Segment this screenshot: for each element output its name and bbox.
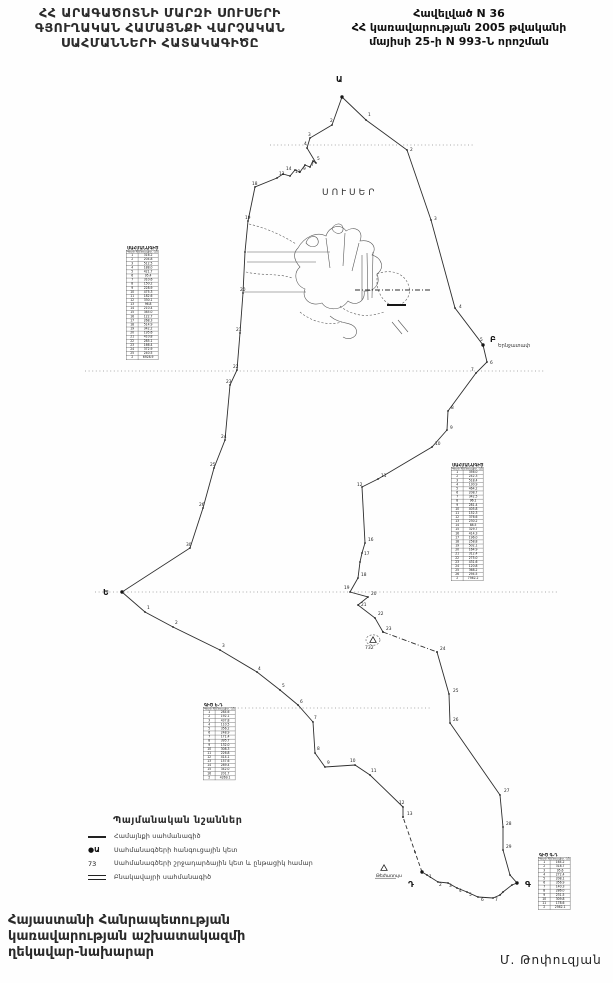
- boundary-point: [406, 149, 408, 151]
- boundary-point: [436, 651, 438, 653]
- boundary-line: [383, 632, 437, 652]
- table-cell: 4269.1: [215, 776, 235, 780]
- table: Կետի NՀեռավոր. (մ)1164.22318.7395.64272.…: [538, 857, 570, 910]
- point-number: 4: [258, 666, 261, 672]
- boundary-point: [509, 874, 511, 876]
- boundary-point: [499, 794, 501, 796]
- point-number: 21: [361, 602, 367, 608]
- point-number: 12: [357, 482, 363, 488]
- boundary-point: [502, 891, 504, 893]
- legend-item-label: Սահմանագծերի շրջադարձային կետ և ընթացիկ …: [114, 860, 313, 867]
- boundary-point: [377, 478, 379, 480]
- boundary-point: [315, 162, 317, 164]
- boundary-point: [466, 891, 468, 893]
- boundary-point: [449, 722, 451, 724]
- point-number: 8: [317, 746, 320, 752]
- point-number: 4: [459, 304, 462, 310]
- junction-point: [420, 870, 423, 873]
- legend-item-label: Սահմանագծերի հանգուցային կետ: [114, 847, 238, 854]
- table-cell: Σ: [451, 577, 463, 581]
- boundary-point: [374, 617, 376, 619]
- boundary-point: [369, 774, 371, 776]
- boundary-point: [430, 219, 432, 221]
- boundary-point: [365, 119, 367, 121]
- boundary-point: [382, 631, 384, 633]
- boundary-point: [144, 611, 146, 613]
- boundary-point: [312, 721, 314, 723]
- point-number: 18: [252, 181, 258, 187]
- boundary-point: [324, 766, 326, 768]
- point-number: 12: [279, 171, 285, 177]
- boundary-point: [502, 826, 504, 828]
- boundary-point: [502, 849, 504, 851]
- boundary-point: [414, 851, 416, 853]
- point-number: 3: [434, 216, 437, 222]
- boundary-point: [499, 894, 501, 896]
- boundary-point: [426, 874, 428, 876]
- point-number: 3: [308, 132, 311, 138]
- boundary-point: [448, 693, 450, 695]
- boundary-point: [364, 542, 366, 544]
- boundary-point: [357, 604, 359, 606]
- point-number: 19: [245, 215, 251, 221]
- boundary-point: [475, 372, 477, 374]
- boundary-point: [331, 124, 333, 126]
- village-name-label: ՍՈՒՍԵՐ: [322, 188, 377, 198]
- point-number: 2: [439, 882, 442, 888]
- junction-label: Ե: [103, 588, 109, 597]
- point-number: 25: [210, 462, 216, 468]
- boundary-point: [402, 816, 404, 818]
- boundary-point: [314, 752, 316, 754]
- settlement-outline: [244, 252, 330, 292]
- footer-line-2: կառավարության աշխատակազմի: [8, 929, 245, 945]
- junction-point: [120, 590, 123, 593]
- neighbor-name-label: Երնջատափ: [498, 343, 530, 349]
- point-number: 11: [381, 473, 387, 479]
- point-number: 5: [317, 156, 320, 162]
- footer-issuer: Հայաստանի Հանրապետության կառավարության ա…: [8, 913, 245, 961]
- coordinate-table: Կետի NՀեռավոր. (մ)1316.22204.83512.54188…: [126, 250, 158, 369]
- coordinate-table: Կետի NՀեռավոր. (մ)1356.02242.33518.44130…: [451, 467, 482, 591]
- point-number: 13: [407, 811, 413, 817]
- point-number: 4: [304, 141, 307, 147]
- junction-label: Ա: [336, 75, 343, 84]
- legend-item: Համայնքի սահմանագիծ: [88, 830, 328, 844]
- coordinate-table: Կետի NՀեռավոր. (մ)1284.62192.13437.84110…: [203, 707, 230, 787]
- point-number: 23: [386, 626, 392, 632]
- point-number: 10: [435, 441, 441, 447]
- junction-symbol-icon: ●Ա: [88, 846, 114, 854]
- boundary-point: [312, 160, 314, 162]
- boundary-point: [511, 884, 513, 886]
- point-number: 10: [350, 758, 356, 764]
- settlement-outline: [362, 252, 373, 300]
- boundary-point: [456, 887, 458, 889]
- point-number: 27: [504, 788, 510, 794]
- table: Կետի NՀեռավոր. (մ)1284.62192.13437.84110…: [203, 707, 235, 780]
- turnpoint-symbol-icon: 73: [88, 860, 114, 868]
- double-symbol-icon: [88, 875, 114, 880]
- point-number: 29: [506, 844, 512, 850]
- boundary-point: [297, 704, 299, 706]
- boundary-point: [279, 689, 281, 691]
- table-cell: Σ: [203, 776, 215, 780]
- legend-items: Համայնքի սահմանագիծ●ԱՍահմանագծերի հանգու…: [88, 830, 328, 884]
- boundary-line: [403, 817, 422, 872]
- triangulation-point-icon: [381, 865, 387, 871]
- junction-point: [515, 881, 518, 884]
- elevation-label: 732: [365, 645, 374, 651]
- point-number: 5: [480, 337, 483, 343]
- table-row: Σ2562.1: [538, 905, 570, 909]
- line-symbol-icon: [88, 836, 114, 838]
- map-sheet: ՀՀ ԱՐԱԳԱԾՈՏՆԻ ՄԱՐԶԻ ՍՈՒՍԵՐԻ ԳՅՈՒՂԱԿԱՆ ՀԱ…: [0, 0, 613, 983]
- legend-item-label: Համայնքի սահմանագիծ: [114, 833, 201, 840]
- settlement-outline: [294, 226, 381, 308]
- footer-line-1: Հայաստանի Հանրապետության: [8, 913, 245, 929]
- point-number: 1: [147, 605, 150, 611]
- point-number: 2: [330, 118, 333, 124]
- boundary-point: [357, 577, 359, 579]
- junction-point: [481, 343, 484, 346]
- legend-item: ●ԱՍահմանագծերի հանգուցային կետ: [88, 844, 328, 858]
- settlement-outline: [246, 224, 296, 278]
- boundary-point: [306, 147, 308, 149]
- point-number: 7: [311, 162, 314, 168]
- table: Կետի NՀեռավոր. (մ)1356.02242.33518.44130…: [451, 467, 483, 581]
- boundary-point: [289, 175, 291, 177]
- point-number: 3: [222, 643, 225, 649]
- settlement-outline: [300, 306, 384, 324]
- point-number: 22: [233, 364, 239, 370]
- point-number: 28: [506, 821, 512, 827]
- table-row: Σ7562.2: [451, 577, 483, 581]
- point-number: 6: [481, 897, 484, 903]
- point-number: 12: [399, 800, 405, 806]
- point-number: 2: [410, 147, 413, 153]
- junction-point: [340, 95, 343, 98]
- point-number: 22: [378, 611, 384, 617]
- boundary-point: [492, 897, 494, 899]
- settlement-outline: [330, 316, 357, 339]
- legend-item: 73Սահմանագծերի շրջադարձային կետ և ընթացի…: [88, 857, 328, 871]
- point-number: 7: [314, 715, 317, 721]
- point-number: 7: [471, 367, 474, 373]
- legend-title: Պայմանական նշաններ: [113, 815, 328, 826]
- point-number: 6: [300, 699, 303, 705]
- point-number: 24: [440, 646, 446, 652]
- signature: Մ. Թոփուզյան: [500, 953, 602, 967]
- boundary-point: [486, 361, 488, 363]
- point-number: 1: [429, 874, 432, 880]
- table-cell: Σ: [126, 356, 138, 360]
- point-number: 7: [495, 897, 498, 903]
- point-number: 1: [368, 112, 371, 118]
- boundary-point: [244, 251, 246, 253]
- settlement-outline: [377, 272, 409, 306]
- boundary-point: [431, 446, 433, 448]
- point-number: 25: [453, 688, 459, 694]
- table-cell: 6928.9: [138, 356, 158, 360]
- point-number: 8: [451, 405, 454, 411]
- point-number: 5: [282, 683, 285, 689]
- boundary-point: [349, 591, 351, 593]
- point-number: 11: [295, 169, 301, 175]
- point-number: 9: [450, 425, 453, 431]
- table-cell: Σ: [538, 905, 550, 909]
- boundary-point: [359, 561, 361, 563]
- settlement-outline: [326, 233, 359, 271]
- point-number: 14: [286, 166, 292, 172]
- table-row: Σ4269.1: [203, 776, 235, 780]
- boundary-point: [447, 410, 449, 412]
- table: Կետի NՀեռավոր. (մ)1316.22204.83512.54188…: [126, 250, 158, 360]
- point-number: 16: [368, 537, 374, 543]
- point-number: 6: [490, 360, 493, 366]
- boundary-line: [422, 652, 517, 898]
- point-number: 2: [175, 620, 178, 626]
- point-number: 5: [469, 892, 472, 898]
- point-number: 20: [240, 287, 246, 293]
- boundary-point: [276, 177, 278, 179]
- junction-label: Բ: [490, 335, 496, 344]
- boundary-line: [122, 97, 403, 817]
- table-cell: 7562.2: [463, 577, 483, 581]
- legend-item-label: Բնակավայրի սահմանագիծ: [114, 874, 211, 881]
- point-number: 21: [236, 327, 242, 333]
- coordinate-table: Կետի NՀեռավոր. (մ)1164.22318.7395.64272.…: [538, 857, 568, 919]
- point-number: 9: [327, 760, 330, 766]
- point-number: 11: [371, 768, 377, 774]
- point-number: 20: [371, 591, 377, 597]
- point-number: 23: [226, 379, 232, 385]
- legend-item: Բնակավայրի սահմանագիծ: [88, 871, 328, 885]
- boundary-point: [402, 806, 404, 808]
- boundary-point: [354, 764, 356, 766]
- point-number: 17: [364, 551, 370, 557]
- table-row: Σ6928.9: [126, 356, 158, 360]
- boundary-point: [367, 596, 369, 598]
- table-cell: 2562.1: [550, 905, 570, 909]
- boundary-point: [477, 896, 479, 898]
- point-number: 30: [186, 542, 192, 548]
- legend: Պայմանական նշաններ Համայնքի սահմանագիծ●Ա…: [88, 815, 328, 884]
- settlement-outline: [392, 320, 408, 334]
- point-number: 4: [459, 888, 462, 894]
- point-number: 3: [449, 883, 452, 889]
- point-number: 24: [221, 434, 227, 440]
- junction-label: Գ: [525, 880, 531, 889]
- point-number: 19: [344, 585, 350, 591]
- boundary-point: [361, 552, 363, 554]
- point-number: 26: [453, 717, 459, 723]
- boundary-point: [304, 164, 306, 166]
- point-number: 9: [303, 166, 306, 172]
- footer-line-3: ղեկավար-նախարար: [8, 945, 245, 961]
- boundary-point: [172, 626, 174, 628]
- junction-label: Դ: [408, 880, 414, 889]
- point-number: 26: [199, 502, 205, 508]
- boundary-point: [446, 429, 448, 431]
- boundary-point: [454, 307, 456, 309]
- boundary-point: [219, 649, 221, 651]
- point-number: 18: [361, 572, 367, 578]
- triangulation-point-icon: [370, 637, 376, 643]
